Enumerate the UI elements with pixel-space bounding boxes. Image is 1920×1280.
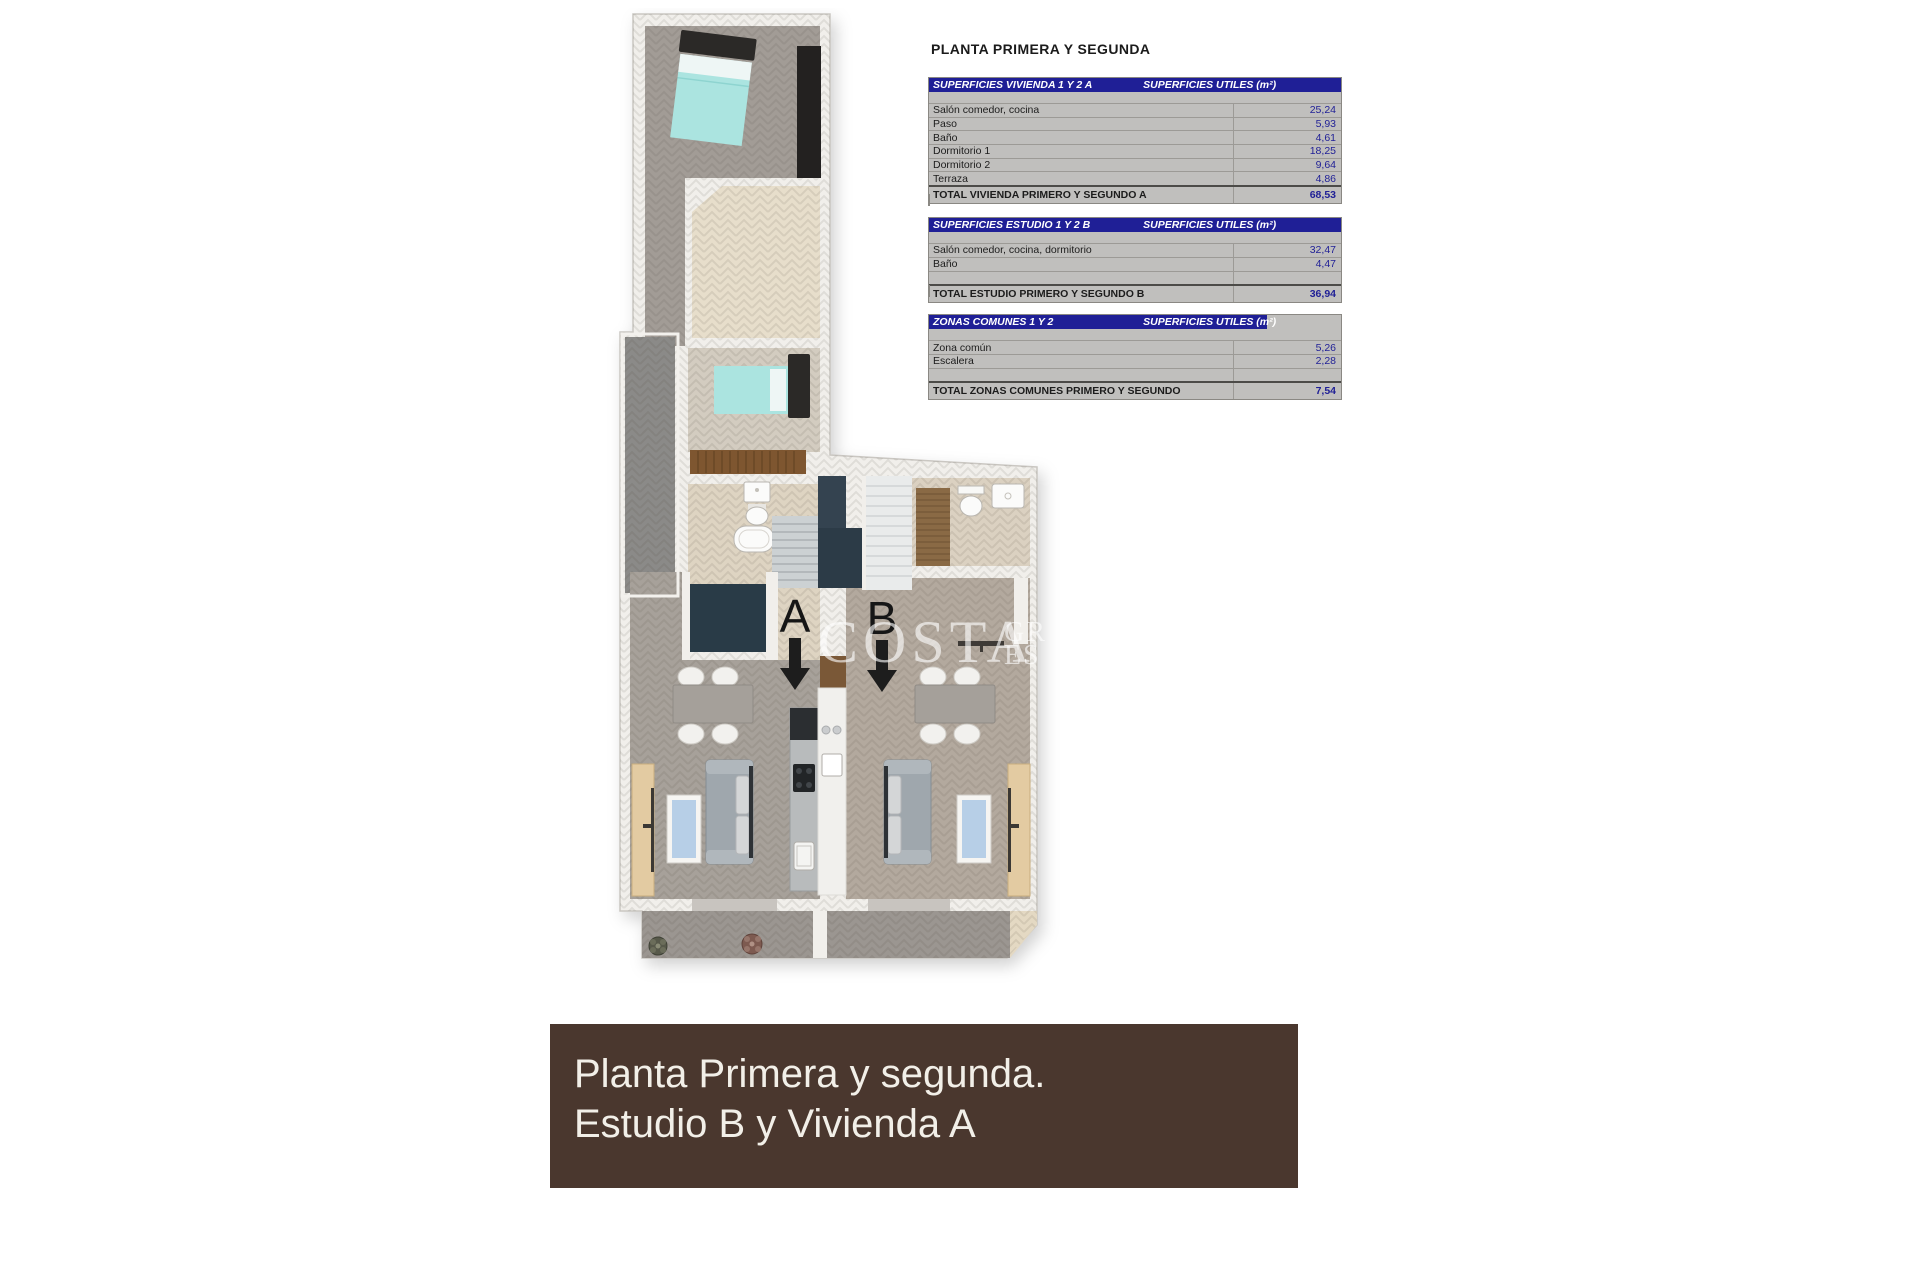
plant-icon [649,937,667,955]
dining-table-icon [673,685,753,723]
caption-line-1: Planta Primera y segunda. [574,1049,1298,1099]
dining-table-icon [915,685,995,723]
chair-icon [678,667,704,687]
wardrobe-wood [690,450,806,474]
floor-plan-image: A B COSTA GR ES [560,8,1140,1008]
value-column-header: SUPERFICIES UTILES (m²) [1143,79,1341,91]
toilet-icon [746,507,768,525]
kitchen-a [790,708,818,891]
double-bed-icon [668,30,757,146]
watermark: COSTA GR ES [818,609,1047,675]
toilet-icon [960,496,982,516]
cooktop-icon [793,764,815,792]
sink-icon [992,484,1024,508]
sink-icon [822,754,842,776]
chair-icon [954,724,980,744]
watermark-main: COSTA [818,609,1035,675]
wardrobe-dark [797,46,821,178]
floor-plan: A B COSTA GR ES [560,8,1140,1008]
value-column-header: SUPERFICIES UTILES (m²) [1143,219,1341,231]
stair-landing [818,476,846,528]
caption-line-2: Estudio B y Vivienda A [574,1099,1298,1149]
chair-icon [678,724,704,744]
utility-block [682,572,778,660]
stair-landing [818,528,862,588]
plant-icon [742,934,762,954]
kitchen-island [818,688,846,895]
cooktop-icon [822,726,830,734]
chair-icon [920,724,946,744]
stairs-icon [866,476,912,590]
watermark-bottom: ES [1004,640,1041,671]
unit-a-label: A [780,590,811,642]
value-column-header: SUPERFICIES UTILES (m²) [1143,316,1341,328]
caption-banner: Planta Primera y segunda. Estudio B y Vi… [550,1024,1298,1188]
stairs-icon [772,516,818,588]
kitchen-b-island [818,656,846,895]
door-icon [632,764,654,896]
chair-icon [712,667,738,687]
door-icon [1008,764,1030,896]
chair-icon [712,724,738,744]
